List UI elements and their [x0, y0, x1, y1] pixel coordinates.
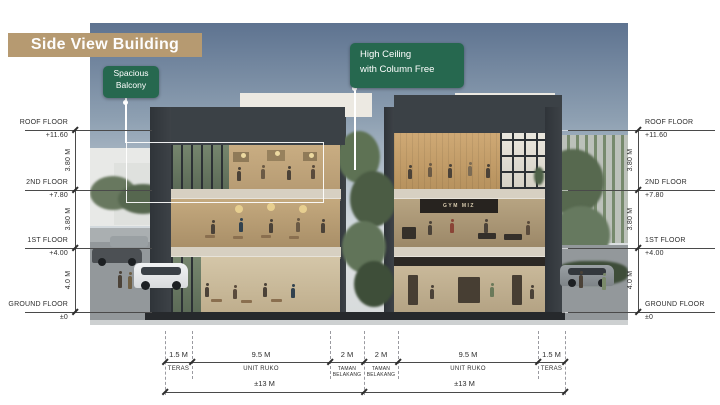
level-elevation: ±0 — [0, 314, 68, 321]
left-unit-1st-floor — [171, 199, 340, 247]
tree — [354, 261, 394, 307]
dim-label: UNIT RUKO — [192, 366, 330, 372]
dim-value: 2 M — [330, 350, 364, 359]
left-unit-cut-wall — [150, 107, 171, 320]
right-unit-roof — [394, 95, 562, 133]
level-name: GROUND FLOOR — [0, 301, 68, 308]
chandelier — [235, 205, 243, 213]
level-line — [25, 190, 152, 191]
person — [269, 223, 273, 233]
vertical-dim: 3.80 M — [627, 140, 635, 180]
level-elevation: +11.60 — [0, 132, 68, 139]
car-windows — [141, 267, 181, 275]
right-unit-2nd-floor — [394, 133, 545, 189]
person — [118, 275, 122, 288]
person — [428, 225, 432, 235]
balcony-highlight-box — [126, 142, 324, 203]
dim-value: 1.5 M — [538, 350, 565, 359]
level-line — [568, 312, 715, 313]
shelf — [458, 277, 480, 303]
level-elevation: +11.60 — [645, 132, 667, 139]
dimension-line — [165, 362, 565, 363]
dim-value: 9.5 M — [398, 350, 538, 359]
gym-equipment — [402, 227, 416, 239]
treadmill — [504, 234, 522, 240]
car — [92, 248, 142, 263]
callout-text-line: Balcony — [103, 80, 159, 92]
table — [271, 299, 282, 302]
vertical-dim: 3.80 M — [65, 199, 73, 239]
vertical-dim: 4.0 M — [65, 260, 73, 300]
right-unit-ground-floor-shop — [394, 257, 545, 312]
dim-label: UNIT RUKO — [398, 366, 538, 372]
chandelier — [267, 203, 275, 211]
wheel — [141, 281, 150, 290]
car — [110, 236, 148, 247]
right-unit-cut-wall — [545, 107, 562, 320]
total-dim-value: ±13 M — [165, 379, 364, 388]
ceiling-leader-line — [354, 84, 356, 170]
dim-label-line: BELAKANG — [330, 372, 364, 378]
treadmill — [478, 233, 496, 239]
person — [468, 166, 472, 176]
person — [450, 223, 454, 233]
table — [261, 235, 271, 238]
person — [233, 289, 237, 299]
level-name: 1ST FLOOR — [0, 237, 68, 244]
callout-text-line: with Column Free — [360, 63, 464, 78]
total-dimension-line — [165, 392, 565, 393]
dim-label: TAMAN BELAKANG — [330, 366, 364, 378]
level-name: ROOF FLOOR — [645, 119, 693, 126]
person — [579, 275, 583, 288]
plant — [534, 167, 544, 185]
balcony-leader-dot — [123, 100, 128, 105]
dim-value: 2 M — [364, 350, 398, 359]
car-windows — [568, 268, 606, 275]
vertical-dim: 3.80 M — [65, 140, 73, 180]
table — [241, 300, 252, 303]
shelf — [408, 275, 418, 305]
level-line — [25, 248, 152, 249]
level-line — [25, 130, 152, 131]
shelf — [512, 275, 522, 305]
level-name: 2ND FLOOR — [645, 179, 687, 186]
level-elevation: +4.00 — [645, 250, 664, 257]
level-line — [568, 130, 715, 131]
wheel — [568, 279, 576, 287]
person — [602, 277, 606, 290]
dim-label: TERAS — [165, 366, 192, 372]
person — [128, 276, 132, 289]
white-suv — [134, 263, 188, 288]
dim-value: 1.5 M — [165, 350, 192, 359]
left-unit-roof — [150, 107, 345, 145]
person — [530, 289, 534, 299]
shop-header — [394, 257, 545, 266]
level-elevation: +4.00 — [0, 250, 68, 257]
sidewalk-strip — [90, 320, 628, 325]
level-name: ROOF FLOOR — [0, 119, 68, 126]
callout-high-ceiling: High Ceiling with Column Free — [350, 43, 464, 88]
person — [430, 289, 434, 299]
dim-value: 9.5 M — [192, 350, 330, 359]
slide: GYM MIZ — [0, 0, 720, 405]
person — [526, 225, 530, 235]
wheel — [172, 281, 181, 290]
vertical-dim: 4.0 M — [627, 260, 635, 300]
person — [291, 288, 295, 298]
level-line — [568, 248, 715, 249]
wheel — [98, 258, 106, 266]
person — [263, 287, 267, 297]
dim-label-line: BELAKANG — [364, 372, 398, 378]
table — [289, 236, 299, 239]
left-unit-ground-floor — [171, 257, 340, 312]
callout-spacious-balcony: Spacious Balcony — [103, 66, 159, 98]
person — [428, 167, 432, 177]
extension-line — [565, 331, 566, 395]
callout-text-line: High Ceiling — [360, 48, 464, 63]
dimension-line-vertical — [75, 130, 76, 312]
person — [321, 223, 325, 233]
vertical-dim: 3.80 M — [627, 199, 635, 239]
level-elevation: +7.80 — [645, 192, 664, 199]
tree — [350, 171, 396, 227]
dimension-line-vertical — [638, 130, 639, 312]
callout-text-line: Spacious — [103, 68, 159, 80]
level-elevation: ±0 — [645, 314, 653, 321]
person — [484, 223, 488, 233]
gym-sign: GYM MIZ — [420, 199, 498, 213]
level-name: GROUND FLOOR — [645, 301, 705, 308]
level-name: 1ST FLOOR — [645, 237, 686, 244]
dim-label: TAMAN BELAKANG — [364, 366, 398, 378]
level-elevation: +7.80 — [0, 192, 68, 199]
level-name: 2ND FLOOR — [0, 179, 68, 186]
person — [448, 168, 452, 178]
level-line — [568, 190, 715, 191]
person — [408, 169, 412, 179]
table — [233, 236, 243, 239]
table — [205, 235, 215, 238]
level-line — [25, 312, 152, 313]
person — [490, 287, 494, 297]
person — [239, 222, 243, 232]
page-title: Side View Building — [8, 33, 202, 57]
chandelier — [299, 205, 307, 213]
person — [296, 222, 300, 232]
person — [205, 287, 209, 297]
right-unit-1st-floor-gym: GYM MIZ — [394, 199, 545, 247]
table — [211, 299, 222, 302]
person — [486, 168, 490, 178]
dim-label: TERAS — [538, 366, 565, 372]
total-dim-value: ±13 M — [364, 379, 565, 388]
person — [211, 224, 215, 234]
